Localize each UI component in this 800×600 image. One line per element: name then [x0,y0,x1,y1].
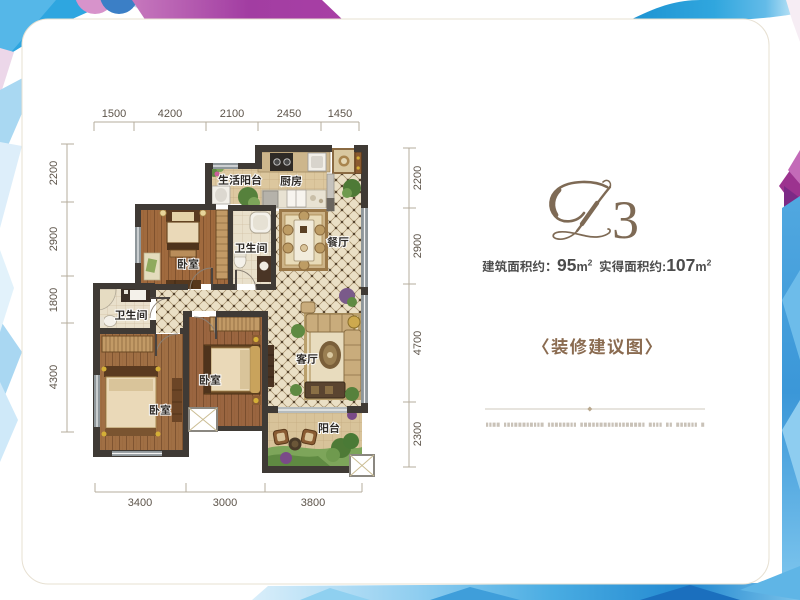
svg-text:2900: 2900 [48,227,60,251]
svg-text:3400: 3400 [128,497,152,509]
svg-text:3: 3 [612,190,639,250]
svg-text:2200: 2200 [412,166,424,190]
svg-text:3000: 3000 [213,497,237,509]
svg-text:2300: 2300 [412,422,424,446]
svg-text:2100: 2100 [220,108,244,120]
svg-text:4700: 4700 [412,331,424,355]
svg-text:1450: 1450 [328,108,352,120]
svg-text:2200: 2200 [48,161,60,185]
svg-text:4300: 4300 [48,365,60,389]
svg-text:1800: 1800 [48,288,60,312]
svg-text:3800: 3800 [301,497,325,509]
svg-text:2450: 2450 [277,108,301,120]
svg-text:95m2: 95m2 [557,255,593,275]
svg-text:1500: 1500 [102,108,126,120]
svg-text:4200: 4200 [158,108,182,120]
svg-text:2900: 2900 [412,234,424,258]
